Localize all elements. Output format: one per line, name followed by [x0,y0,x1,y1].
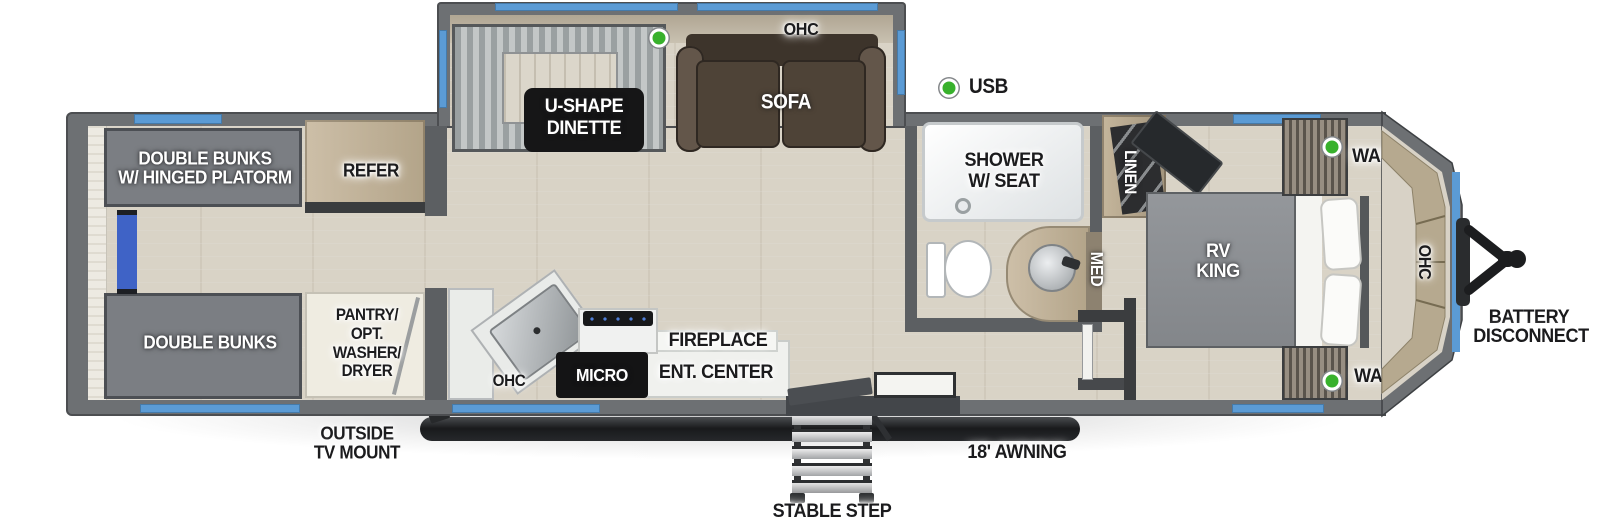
toilet-tank [926,242,946,298]
bed-pillow [1320,273,1363,347]
hitch-coupler [1508,250,1526,268]
label-pantry-line1: PANTRY/ [336,307,398,326]
label-shower-line2: W/ SEAT [968,171,1039,194]
label-sofa: SOFA [761,91,811,115]
floorplan-diagram: U-SHAPE DINETTE SOFA OHC DOUBLE BUNKS W/… [0,0,1600,526]
label-top-bunk-line2: W/ HINGED PLATORM [118,167,291,189]
label-linen: LINEN [1120,150,1139,194]
bedroom-door-frame [1124,298,1136,400]
label-stable-step: STABLE STEP [773,501,892,524]
label-slide-ohc: OHC [784,20,819,41]
bunk-ladder [117,210,137,294]
bedroom-door-frame [1078,310,1124,322]
cooktop-knob-strip [583,311,653,326]
label-usb: USB [969,75,1008,99]
window-strip [1232,404,1324,413]
bedroom-door-leaf [1082,324,1093,380]
bed-sheet-fold [1296,192,1322,348]
label-awning: 18' AWNING [967,442,1066,465]
usb-indicator-dot [1323,138,1342,157]
step-tread [792,446,872,459]
awning-tube [420,417,1080,441]
label-bottom-bunk: DOUBLE BUNKS [143,332,276,354]
bunkroom-wall-upper [425,126,447,216]
label-ent-center: ENT. CENTER [659,362,773,385]
usb-indicator-dot [650,29,669,48]
window-strip [134,114,222,124]
label-battery-line2: DISCONNECT [1473,326,1589,349]
shower-drain [955,198,971,214]
label-pantry-line4: DRYER [342,363,393,382]
window-strip [140,404,300,413]
label-shower-line1: SHOWER [965,150,1044,173]
usb-indicator-dot [1323,372,1342,391]
label-micro: MICRO [576,366,628,387]
bed-headboard [1360,196,1369,348]
refrigerator-front-edge [305,202,425,213]
window-strip [897,30,905,95]
hitch-a-frame [1469,230,1503,290]
bed-pillow [1320,197,1363,271]
toilet-bowl [944,240,992,298]
label-dinette-line2: DINETTE [547,118,622,141]
label-bed-line2: KING [1196,261,1240,284]
bathroom-wall-left [905,126,917,332]
window-strip [495,3,678,11]
wardrobe-top [1282,118,1348,196]
entry-door-mat [874,372,956,398]
label-refer: REFER [343,160,399,182]
usb-legend-dot [940,79,959,98]
label-dinette-line1: U-SHAPE [545,96,624,119]
label-med: MED [1086,252,1107,287]
step-tread [792,429,872,442]
window-strip [452,404,600,413]
step-tread [792,480,872,493]
label-outside-tv-line2: TV MOUNT [314,442,400,464]
step-tread [792,463,872,476]
label-bedroom-ohc: OHC [1414,245,1435,280]
window-strip [697,3,878,11]
window-strip [439,30,447,108]
label-fireplace: FIREPLACE [669,330,768,353]
bunkroom-wall-lower [425,288,447,400]
label-pantry-line3: WASHER/ [333,345,401,364]
bathroom-sink [1028,244,1076,292]
front-nose-and-hitch [1370,90,1600,436]
label-pantry-line2: OPT. [351,326,383,345]
label-kitchen-ohc: OHC [493,373,526,392]
